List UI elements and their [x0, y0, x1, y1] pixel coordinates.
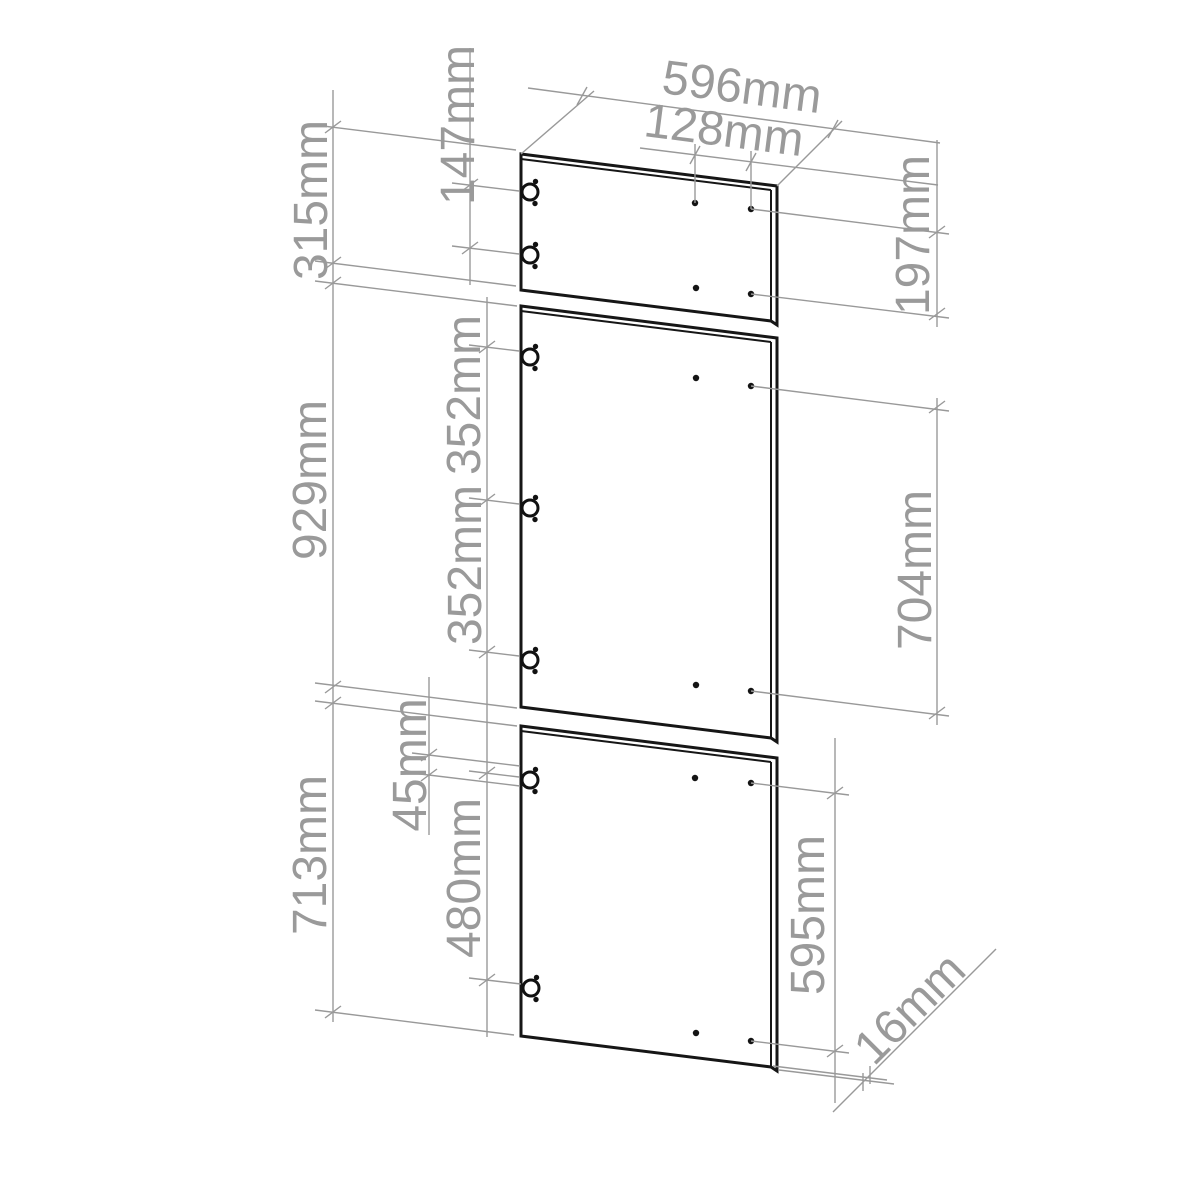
dim-label-bottom-hinge-top-offset: 45mm: [384, 698, 437, 831]
panel-top-outline: [521, 154, 777, 325]
hinge-icon: [522, 495, 538, 522]
panel-top-door: [521, 154, 777, 325]
panel-middle-outline: [521, 306, 777, 742]
hinge-icon: [523, 975, 539, 1002]
dimension-labels: 596mm 128mm 147mm 315mm 197mm 929mm 352m…: [284, 45, 976, 1075]
dim-label-top-door-height: 315mm: [285, 120, 338, 280]
dim-label-bottom-door-height: 713mm: [284, 775, 337, 935]
panel-bottom-door: [521, 726, 777, 1071]
hinge-cups: [522, 179, 539, 1002]
drill-hole: [693, 285, 699, 291]
technical-drawing-canvas: 596mm 128mm 147mm 315mm 197mm 929mm 352m…: [0, 0, 1200, 1200]
dim-label-middle-door-height: 929mm: [284, 400, 337, 560]
hinge-icon: [522, 767, 538, 794]
dim-label-bottom-right-hole-spacing: 595mm: [782, 835, 835, 995]
hinge-icon: [522, 344, 538, 371]
drill-hole: [693, 375, 699, 381]
hinge-icon: [522, 647, 538, 674]
panel-bottom-front-top-edge: [521, 731, 771, 762]
dim-label-middle-hinge-spacing-upper: 352mm: [438, 315, 491, 475]
panel-middle-door: [521, 306, 777, 742]
hinge-icon: [522, 179, 538, 206]
drill-holes: [692, 200, 754, 1044]
hinge-icon: [522, 242, 538, 269]
drill-hole: [693, 682, 699, 688]
dim-label-top-right-hole-spacing: 197mm: [887, 155, 940, 315]
panel-bottom-outline: [521, 726, 777, 1071]
dim-label-middle-right-hole-spacing: 704mm: [889, 490, 942, 650]
dim-label-door-thickness: 16mm: [844, 943, 976, 1075]
panel-top-front-top-edge: [521, 159, 771, 190]
dim-label-top-hinge-spacing: 147mm: [432, 45, 485, 205]
dim-label-bottom-hinge-spacing: 480mm: [438, 798, 491, 958]
drill-hole: [692, 775, 698, 781]
dim-label-middle-hinge-spacing-lower: 352mm: [439, 485, 492, 645]
dimension-drawing: 596mm 128mm 147mm 315mm 197mm 929mm 352m…: [0, 0, 1200, 1200]
drill-hole: [693, 1030, 699, 1036]
